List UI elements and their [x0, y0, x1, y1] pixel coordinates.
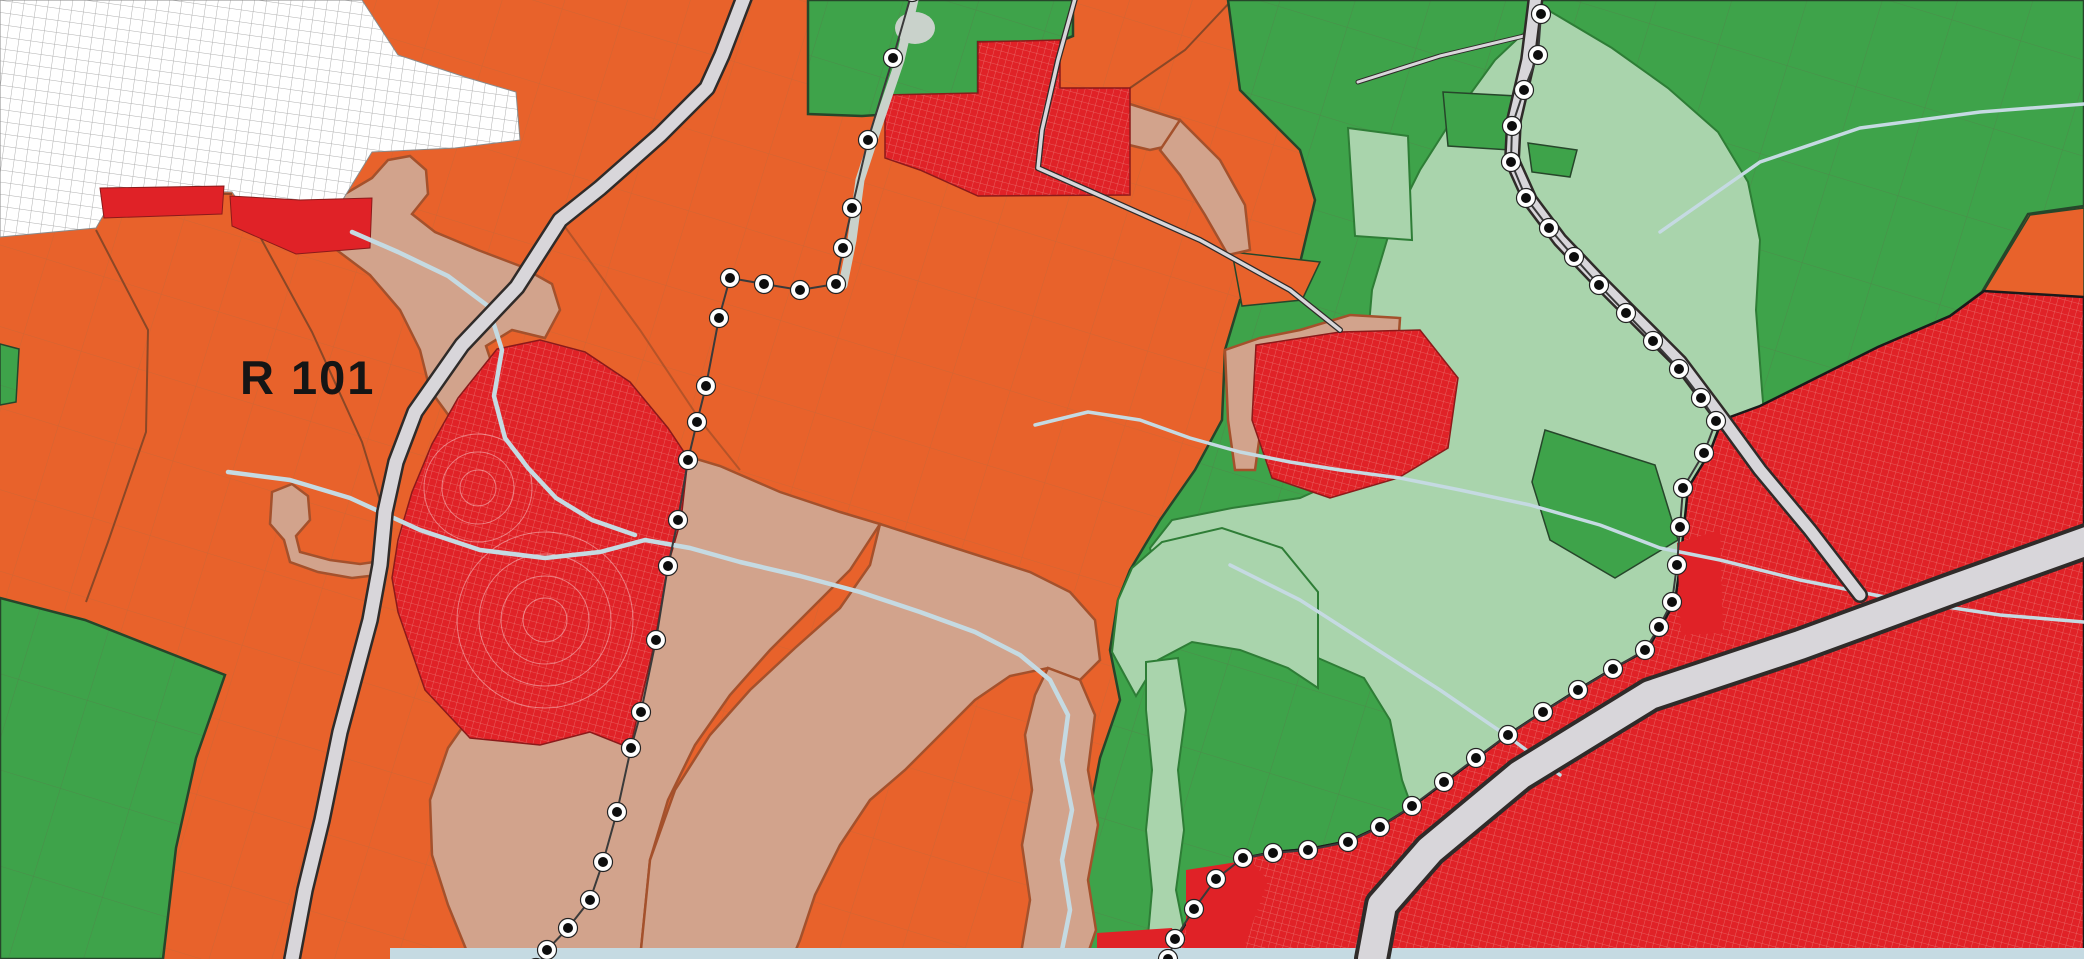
boundary-dot	[1675, 522, 1685, 532]
boundary-dot	[1696, 393, 1706, 403]
boundary-dot	[1648, 336, 1658, 346]
boundary-dot	[1268, 848, 1278, 858]
boundary-dot	[831, 279, 841, 289]
zone-red-strip-1	[100, 186, 224, 218]
boundary-dot	[1544, 223, 1554, 233]
boundary-dot	[838, 243, 848, 253]
boundary-dot	[714, 313, 724, 323]
boundary-dot	[1533, 50, 1543, 60]
boundary-dot	[1439, 777, 1449, 787]
boundary-dot	[1536, 9, 1546, 19]
boundary-dot	[1521, 193, 1531, 203]
boundary-dot	[692, 417, 702, 427]
waterway-bottom-strip	[390, 948, 2084, 959]
boundary-dot	[1238, 853, 1248, 863]
boundary-dot	[863, 135, 873, 145]
boundary-dot	[1699, 448, 1709, 458]
red-patch	[1677, 530, 1723, 635]
boundary-dot	[759, 279, 769, 289]
boundary-dot	[1538, 707, 1548, 717]
boundary-dot	[1654, 622, 1664, 632]
boundary-dot	[542, 945, 552, 955]
zoning-map-canvas[interactable]: R 101	[0, 0, 2084, 959]
boundary-dot	[1471, 753, 1481, 763]
boundary-dot	[1594, 280, 1604, 290]
boundary-dot	[1621, 308, 1631, 318]
boundary-dot	[651, 635, 661, 645]
boundary-dot	[1608, 664, 1618, 674]
boundary-dot	[663, 561, 673, 571]
boundary-dot	[1573, 685, 1583, 695]
boundary-dot	[626, 743, 636, 753]
boundary-dot	[1506, 157, 1516, 167]
boundary-dot	[1640, 645, 1650, 655]
boundary-dot	[888, 53, 898, 63]
boundary-dot	[847, 203, 857, 213]
boundary-dot	[1674, 364, 1684, 374]
boundary-dot	[1711, 416, 1721, 426]
zone-floodplain-south-corridor	[1020, 668, 1098, 959]
boundary-dot	[1519, 85, 1529, 95]
boundary-dot	[1343, 837, 1353, 847]
boundary-dot	[1407, 801, 1417, 811]
boundary-dot	[636, 707, 646, 717]
boundary-dot	[1672, 560, 1682, 570]
boundary-dot	[1211, 874, 1221, 884]
boundary-dot	[725, 273, 735, 283]
boundary-dot	[612, 807, 622, 817]
boundary-dot	[598, 857, 608, 867]
boundary-dot	[1667, 597, 1677, 607]
boundary-dot	[1375, 822, 1385, 832]
boundary-dot	[563, 923, 573, 933]
boundary-dot	[701, 381, 711, 391]
boundary-dot	[1170, 934, 1180, 944]
boundary-dot	[673, 515, 683, 525]
boundary-dot	[1678, 483, 1688, 493]
zoning-map: R 101	[0, 0, 2084, 959]
zone-label: R 101	[240, 351, 375, 404]
boundary-dot	[1569, 252, 1579, 262]
boundary-dot	[1303, 845, 1313, 855]
boundary-dot	[1503, 730, 1513, 740]
zone-floodzone-stream-tongue	[1146, 658, 1186, 959]
boundary-dot	[1507, 121, 1517, 131]
zone-floodzone-pale-green-west	[1348, 128, 1412, 240]
boundary-dot	[795, 285, 805, 295]
boundary-dot	[1189, 904, 1199, 914]
zone-green-left-sliver	[0, 344, 19, 405]
boundary-dot	[683, 455, 693, 465]
boundary-dot	[585, 895, 595, 905]
